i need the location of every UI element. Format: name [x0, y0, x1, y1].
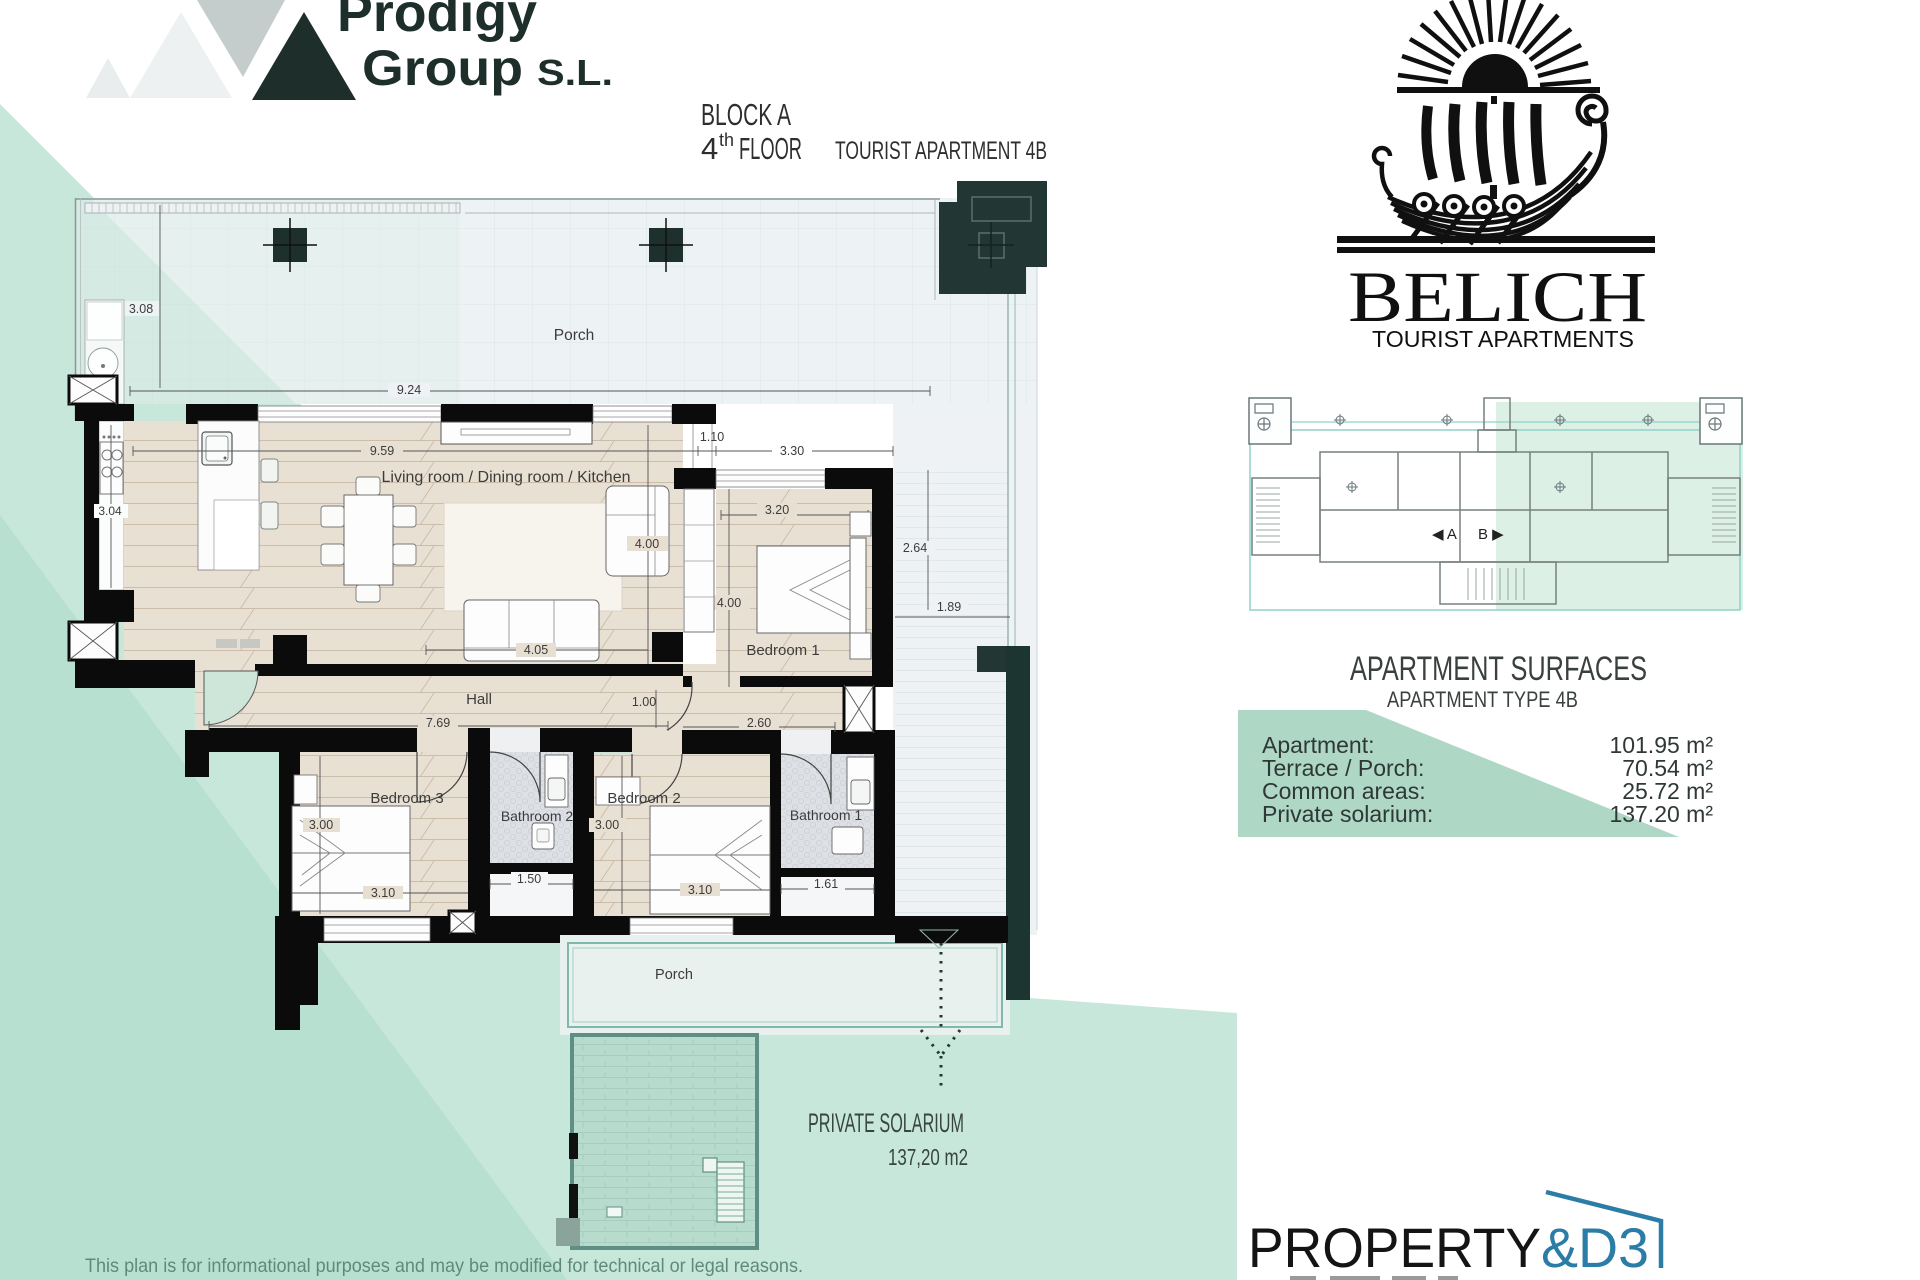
svg-text:BLOCK A: BLOCK A: [701, 97, 791, 132]
svg-text:Prodigy: Prodigy: [337, 0, 537, 43]
svg-text:&D3: &D3: [1541, 1216, 1649, 1279]
svg-text:B ▶: B ▶: [1478, 526, 1504, 543]
svg-text:9.59: 9.59: [370, 444, 394, 458]
svg-text:4.00: 4.00: [717, 596, 741, 610]
svg-text:◀ A: ◀ A: [1432, 526, 1457, 543]
svg-text:Porch: Porch: [554, 327, 595, 344]
svg-text:3.04: 3.04: [98, 504, 122, 518]
svg-text:Living room / Dining room / Ki: Living room / Dining room / Kitchen: [382, 469, 631, 486]
svg-text:3.20: 3.20: [765, 503, 789, 517]
svg-text:3.30: 3.30: [780, 444, 804, 458]
svg-text:137.20 m²: 137.20 m²: [1609, 801, 1713, 827]
svg-text:3.10: 3.10: [688, 883, 712, 897]
svg-text:APARTMENT TYPE 4B: APARTMENT TYPE 4B: [1387, 687, 1578, 712]
svg-text:APARTMENT SURFACES: APARTMENT SURFACES: [1350, 650, 1647, 688]
svg-text:9.24: 9.24: [397, 383, 421, 397]
svg-text:Bedroom 2: Bedroom 2: [607, 790, 680, 807]
svg-text:TOURIST APARTMENTS: TOURIST APARTMENTS: [1372, 326, 1634, 352]
svg-text:3.00: 3.00: [595, 818, 619, 832]
svg-text:1.10: 1.10: [700, 430, 724, 444]
svg-text:FLOOR: FLOOR: [739, 131, 802, 166]
svg-text:137,20 m2: 137,20 m2: [888, 1144, 968, 1170]
svg-text:3.00: 3.00: [309, 818, 333, 832]
svg-text:4.05: 4.05: [524, 643, 548, 657]
svg-text:Bedroom 1: Bedroom 1: [746, 642, 819, 659]
svg-text:PRIVATE SOLARIUM: PRIVATE SOLARIUM: [808, 1108, 964, 1138]
svg-text:Bathroom 1: Bathroom 1: [790, 807, 863, 823]
svg-text:PROPERTY: PROPERTY: [1248, 1216, 1541, 1279]
svg-text:TOURIST APARTMENT 4B: TOURIST APARTMENT 4B: [835, 137, 1047, 165]
svg-text:1.00: 1.00: [632, 695, 656, 709]
svg-text:Bathroom 2: Bathroom 2: [501, 808, 574, 824]
svg-text:th: th: [719, 130, 734, 150]
svg-text:Porch: Porch: [655, 967, 693, 983]
svg-text:BELICH: BELICH: [1348, 257, 1647, 337]
svg-text:2.60: 2.60: [747, 716, 771, 730]
svg-text:1.89: 1.89: [937, 600, 961, 614]
svg-text:Private solarium:: Private solarium:: [1262, 801, 1433, 827]
svg-text:Bedroom 3: Bedroom 3: [370, 790, 443, 807]
svg-text:7.69: 7.69: [426, 716, 450, 730]
svg-text:1.61: 1.61: [814, 877, 838, 891]
svg-text:1.50: 1.50: [517, 872, 541, 886]
svg-text:This plan is for informational: This plan is for informational purposes …: [85, 1255, 803, 1277]
svg-text:4.00: 4.00: [635, 537, 659, 551]
svg-text:S.L.: S.L.: [537, 52, 613, 93]
svg-text:4: 4: [701, 131, 718, 166]
svg-text:2.64: 2.64: [903, 541, 927, 555]
svg-text:Group: Group: [362, 40, 523, 96]
svg-text:3.08: 3.08: [129, 302, 153, 316]
svg-text:Hall: Hall: [466, 691, 492, 708]
svg-text:3.10: 3.10: [371, 886, 395, 900]
